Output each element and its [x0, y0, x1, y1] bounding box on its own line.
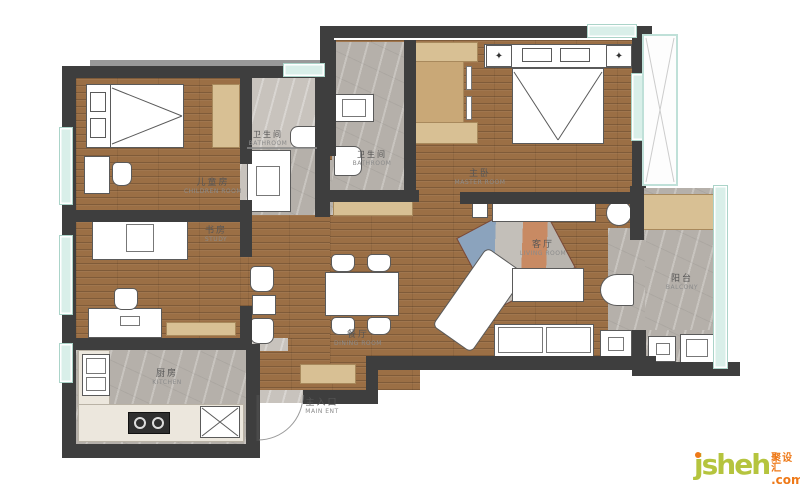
sofa-cushion: [546, 327, 591, 353]
master-wardrobe-bottom: [412, 122, 478, 144]
wall-chair: [250, 318, 274, 344]
wall-chair: [250, 266, 274, 292]
wall-segment: [460, 192, 638, 204]
dining-chair: [331, 317, 355, 335]
balcony-glazing: [714, 186, 727, 368]
armchair: [600, 274, 634, 306]
dining-chair: [367, 254, 391, 272]
fridge: [200, 406, 240, 438]
burner: [152, 417, 164, 429]
master-wardrobe-middle: [412, 61, 464, 123]
window: [284, 64, 324, 76]
children-desk-chair: [112, 162, 132, 186]
sofa-cushion: [498, 327, 543, 353]
sink-basin: [86, 377, 106, 391]
wall-segment: [62, 444, 260, 458]
sink-basin: [342, 99, 366, 117]
wall-side-table: [252, 295, 276, 315]
washer-door: [686, 339, 708, 357]
toilet: [334, 146, 362, 176]
side-unit: [472, 202, 488, 218]
window: [60, 236, 72, 314]
wall-segment: [240, 78, 252, 164]
children-wardrobe: [212, 84, 240, 148]
shoe-cabinet: [300, 364, 356, 384]
nightstand-lamp: ✦: [606, 45, 632, 67]
coffee-table: [512, 268, 584, 302]
balcony-cabinet: [643, 194, 715, 230]
dining-table: [325, 272, 399, 316]
logo-chinese-text: 聚设汇: [771, 454, 800, 474]
master-wardrobe-top: [412, 42, 478, 62]
pillow: [560, 48, 590, 62]
laptop: [120, 316, 140, 326]
master-bed: [512, 68, 604, 144]
pillow: [90, 92, 106, 112]
floor-bathroom-2: [332, 42, 408, 202]
sink-basin: [656, 343, 670, 355]
wardrobe-slot: [466, 66, 472, 90]
burner: [134, 417, 146, 429]
wall-segment: [76, 338, 252, 350]
shelf-box: [126, 224, 154, 252]
bed-headboard-line: [110, 84, 111, 148]
room-name-en: MAIN ENT: [282, 408, 362, 415]
pillow: [90, 118, 106, 138]
wall-segment: [76, 210, 240, 222]
study-chair: [114, 288, 138, 310]
sink-basin: [86, 358, 106, 374]
children-desk: [84, 156, 110, 194]
jsheh-logo[interactable]: jsheh 聚设汇 .com: [694, 451, 800, 486]
wall-segment: [327, 190, 419, 202]
wall-segment: [240, 306, 252, 350]
dining-chair: [331, 254, 355, 272]
wall-segment: [246, 344, 260, 458]
threshold-main-door: [254, 390, 304, 403]
wall-segment: [630, 186, 644, 240]
wall-segment: [366, 356, 656, 370]
pillow: [522, 48, 552, 62]
logo-dot-icon: [695, 452, 701, 458]
ac-platform-window: [642, 34, 678, 186]
window: [60, 128, 72, 204]
window: [60, 344, 72, 382]
wall-segment: [240, 215, 252, 257]
wardrobe-slot: [466, 96, 472, 120]
floor-plan: ✦ ✦: [0, 0, 800, 495]
window: [588, 25, 636, 37]
logo-brand-text: jsheh: [694, 451, 769, 479]
study-credenza: [166, 322, 236, 336]
logo-tld-text: .com: [771, 474, 800, 486]
wall-segment: [404, 40, 416, 192]
hall-cabinet: [333, 200, 413, 216]
wall-segment: [328, 40, 336, 156]
dining-chair: [367, 317, 391, 335]
sink-basin: [256, 166, 280, 196]
nightstand-lamp: ✦: [486, 45, 512, 67]
side-table-top: [608, 337, 624, 351]
wall-segment: [303, 390, 378, 404]
